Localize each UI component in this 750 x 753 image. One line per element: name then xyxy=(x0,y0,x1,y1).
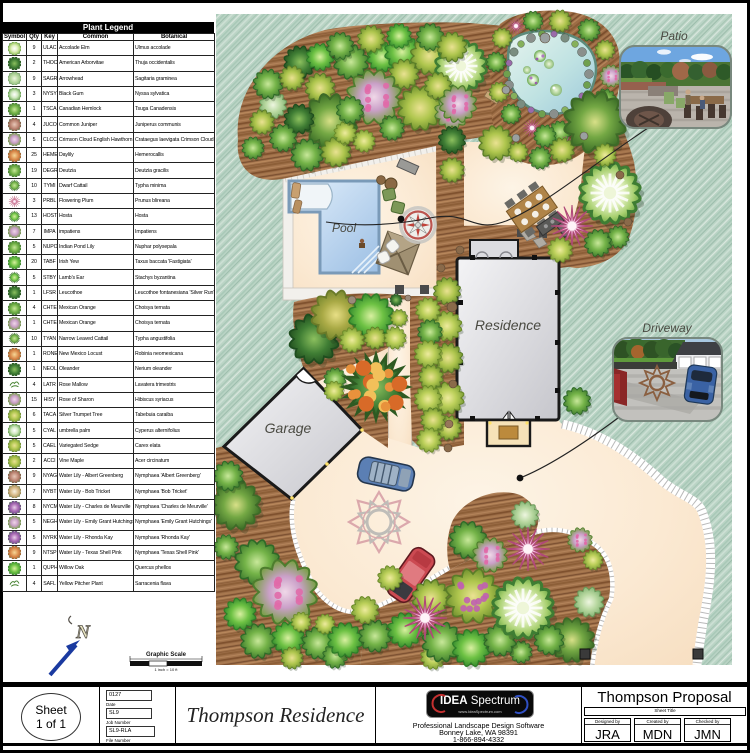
svg-text:N: N xyxy=(75,622,91,643)
svg-text:Residence: Residence xyxy=(475,317,541,333)
svg-text:Graphic Scale: Graphic Scale xyxy=(146,652,187,658)
svg-text:Garage: Garage xyxy=(265,420,312,436)
svg-text:1 inch = 10 ft: 1 inch = 10 ft xyxy=(154,667,178,672)
svg-text:Driveway: Driveway xyxy=(642,321,692,335)
svg-text:Patio: Patio xyxy=(660,29,688,43)
